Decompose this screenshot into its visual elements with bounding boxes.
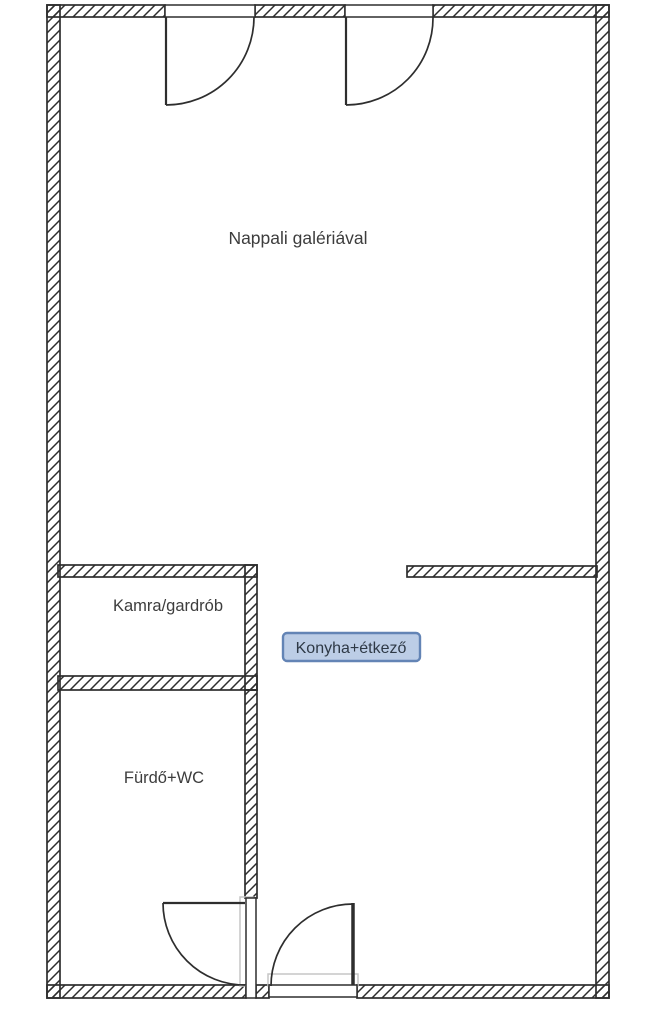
wall-konyha-divider <box>407 566 597 577</box>
wall-kamra-furdo-sep <box>58 676 257 690</box>
door-opening-furdo <box>246 898 256 998</box>
room-label-kamra: Kamra/gardrób <box>113 597 223 615</box>
door-frame-entry <box>268 974 358 986</box>
wall-bottom-right-segment <box>357 985 609 998</box>
door-opening-top-left <box>165 5 255 17</box>
wall-top-right-segment <box>433 5 609 17</box>
wall-top-middle-segment <box>255 5 345 17</box>
door-opening-top-right <box>345 5 433 17</box>
wall-bottom-mid-segment <box>256 985 269 998</box>
door-swing-arc-furdo-icon <box>163 903 245 985</box>
wall-kamra-right <box>245 565 257 690</box>
wall-openings <box>165 5 433 998</box>
floor-plan-canvas: Nappali galériával Kamra/gardrób Fürdő+W… <box>0 0 660 1023</box>
doors <box>163 17 433 986</box>
room-label-furdo: Fürdő+WC <box>124 769 204 787</box>
wall-top-left-segment <box>47 5 165 17</box>
room-label-konyha-highlighted[interactable]: Konyha+étkező <box>283 633 420 661</box>
door-swing-arc-top-left-icon <box>166 17 254 105</box>
door-opening-entry <box>269 985 357 997</box>
wall-right <box>596 5 609 998</box>
room-label-nappali: Nappali galériával <box>228 228 367 248</box>
door-swing-arc-top-right-icon <box>346 17 433 105</box>
floor-plan-drawing: Nappali galériával Kamra/gardrób Fürdő+W… <box>0 0 660 1023</box>
wall-bottom-left-segment <box>47 985 246 998</box>
wall-left <box>47 5 60 998</box>
outer-walls <box>47 5 609 998</box>
room-label-konyha-text: Konyha+étkező <box>296 640 407 657</box>
wall-kamra-top <box>58 565 257 577</box>
wall-furdo-right <box>245 690 257 898</box>
